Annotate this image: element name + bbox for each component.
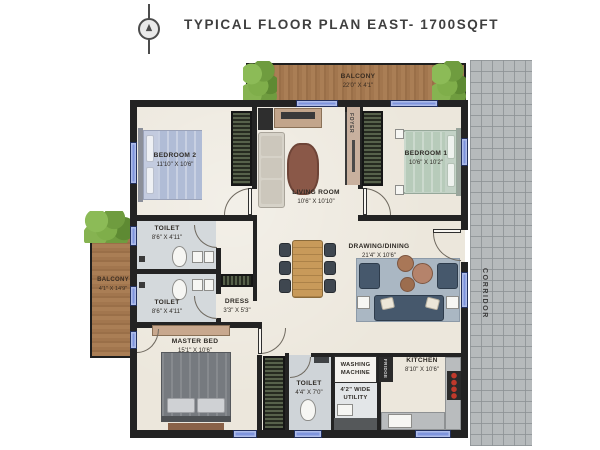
dining-chair-2: [279, 261, 291, 275]
toilet-bottom-dims: 8'6" X 4'11": [138, 308, 196, 317]
bed2-pillow-2: [146, 167, 154, 194]
plant-top-left: [243, 61, 277, 104]
toilet-common-wc: [300, 399, 316, 421]
toilet-top-shower: [139, 256, 145, 262]
door-leaf-bedroom2: [248, 188, 252, 215]
dining-chair-1: [279, 243, 291, 257]
wall-bedroom2-bottom: [136, 215, 257, 221]
wall-bedroom2-right: [252, 107, 257, 189]
wall-toilet-divider: [136, 269, 221, 274]
window-living-top: [296, 100, 338, 107]
kitchen-sink: [388, 414, 412, 428]
fridge-label: FRIDGE: [383, 359, 388, 378]
bed1-side-table-1: [395, 129, 404, 139]
foyer-label: FOYER: [348, 113, 354, 133]
window-master-left: [130, 331, 137, 349]
washing-machine-label: WASHING MACHINE: [335, 361, 376, 378]
kitchen-label: KITCHEN 8'10" X 10'6": [391, 356, 453, 374]
dress-name: DRESS: [208, 297, 266, 307]
toilet-bottom-sink-2: [204, 279, 214, 291]
stove: [447, 371, 461, 400]
toilet-common-shelf: [314, 357, 329, 363]
master-pillow-2: [197, 398, 225, 413]
kitchen-dims: 8'10" X 10'6": [391, 366, 453, 375]
dress-dims: 3'3" X 5'3": [208, 307, 266, 316]
living-sofa-cushion-1: [261, 136, 282, 156]
toilet-top-dims: 8'6" X 4'11": [138, 234, 196, 243]
master-bed-name: MASTER BED: [156, 337, 234, 347]
master-bed-dims: 15'1" X 10'6": [156, 347, 234, 356]
washing-machine: WASHING MACHINE: [334, 356, 377, 383]
drawing-side-table-1: [357, 296, 370, 309]
window-toilet-common-bottom: [294, 430, 322, 438]
master-shelf: [152, 325, 230, 336]
window-master-bottom: [233, 430, 257, 438]
toilet-top-name: TOILET: [138, 224, 196, 234]
wall-master-right: [257, 355, 262, 430]
drawing-armchair-right: [437, 263, 458, 289]
living-room-dims: 10'6" X 10'10": [277, 198, 355, 207]
wall-dress-right: [253, 221, 257, 301]
utility-label: 4'2" WIDE UTILITY: [334, 386, 377, 403]
window-bedroom1-top: [390, 100, 438, 107]
plant-top-right: [432, 61, 466, 104]
dining-chair-6: [324, 279, 336, 293]
living-cabinet: [258, 108, 273, 130]
dining-table: [292, 240, 323, 298]
master-bench: [168, 423, 224, 430]
master-headboard: [161, 416, 231, 422]
wall-toilet3-top-a: [285, 353, 289, 357]
window-drawing-right: [461, 272, 468, 308]
dining-chair-3: [279, 279, 291, 293]
wall-bedroom1-bottom: [358, 215, 461, 221]
balcony-top-dims: 22'0" X 4'1": [300, 82, 416, 91]
toilet-bottom-label: TOILET 8'6" X 4'11": [138, 298, 196, 316]
dress-label: DRESS 3'3" X 5'3": [208, 297, 266, 315]
master-pillow-1: [167, 398, 195, 413]
window-kitchen-bottom: [415, 430, 451, 438]
page-title: TYPICAL FLOOR PLAN EAST- 1700SQFT: [184, 17, 499, 32]
utility-sink: [337, 404, 353, 416]
bedroom2-label: BEDROOM 2 11'10" X 10'6": [134, 151, 216, 169]
window-toilet-top-left: [130, 226, 137, 246]
pouf-3: [400, 277, 415, 292]
living-room-name: LIVING ROOM: [277, 188, 355, 198]
compass-icon: [136, 4, 162, 54]
window-toilet-bottom-left: [130, 286, 137, 306]
toilet-common-label: TOILET 4'4" X 7'0": [287, 379, 331, 397]
drawing-side-table-2: [446, 296, 459, 309]
corridor-strip: [470, 60, 532, 446]
bedroom1-label: BEDROOM 1 10'6" X 10'2": [388, 149, 464, 167]
pouf-2: [412, 263, 433, 284]
louver-dress-top: [221, 274, 253, 287]
drawing-armchair-left: [359, 263, 380, 289]
drawing-dining-dims: 21'4" X 10'6": [338, 252, 420, 261]
toilet-top-label: TOILET 8'6" X 4'11": [138, 224, 196, 242]
bedroom2-name: BEDROOM 2: [134, 151, 216, 161]
balcony-top-name: BALCONY: [300, 72, 416, 82]
balcony-top-label: BALCONY 22'0" X 4'1": [300, 72, 416, 90]
compass-inner-arrow: [146, 24, 152, 31]
bedroom1-dims: 10'6" X 10'2": [388, 159, 464, 168]
drawing-dining-name: DRAWING/DINING: [338, 242, 420, 252]
corridor-label: CORRIDOR: [481, 268, 488, 319]
wardrobe-bedroom2: [231, 111, 252, 186]
dining-chair-4: [324, 243, 336, 257]
master-bed-label: MASTER BED 15'1" X 10'6": [156, 337, 234, 355]
utility-name: 4'2" WIDE UTILITY: [334, 386, 377, 403]
kitchen-name: KITCHEN: [391, 356, 453, 366]
living-room-label: LIVING ROOM 10'6" X 10'10": [277, 188, 355, 206]
door-leaf-bedroom1: [363, 188, 367, 215]
toilet-bottom-wc: [172, 279, 187, 300]
tv: [281, 112, 315, 119]
drawing-dining-label: DRAWING/DINING 21'4" X 10'6": [338, 242, 420, 260]
bedroom2-dims: 11'10" X 10'6": [134, 161, 216, 170]
toilet-bottom-sink-1: [192, 279, 203, 291]
living-sofa-cushion-2: [261, 158, 282, 178]
toilet-common-name: TOILET: [287, 379, 331, 389]
utility-counter: [334, 418, 377, 430]
toilet-common-dims: 4'4" X 7'0": [287, 389, 331, 398]
door-leaf-master: [258, 328, 262, 354]
toilet-bottom-shower: [139, 282, 145, 288]
wardrobe-bedroom1: [362, 111, 383, 186]
toilet-top-sink-1: [192, 251, 203, 263]
bed1-side-table-2: [395, 185, 404, 195]
toilet-top-wc: [172, 246, 187, 267]
wardrobe-master-hall: [263, 356, 285, 430]
dining-chair-5: [324, 261, 336, 275]
toilet-top-sink-2: [204, 251, 214, 263]
plant-left: [84, 211, 134, 243]
toilet-bottom-name: TOILET: [138, 298, 196, 308]
bedroom1-name: BEDROOM 1: [388, 149, 464, 159]
foyer-bench: [352, 140, 355, 172]
